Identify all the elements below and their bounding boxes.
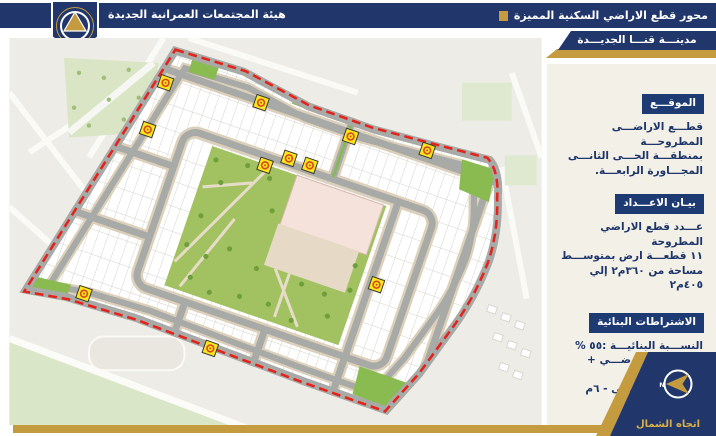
section-location-text: قطـــع الاراضـــى المطروحـــة بمنطقـــة …	[555, 120, 703, 178]
building-footprint-outside	[89, 336, 185, 370]
section-building-rules-badge: الاشتراطات البنائية	[589, 313, 704, 333]
ribbon-gold-band	[546, 49, 716, 58]
header-right-group: محور قطع الاراضي السكنية المميزة	[499, 3, 708, 28]
section-location-badge: الموقـــع	[642, 94, 704, 114]
compass-n-letter: N	[659, 381, 664, 389]
city-title-ribbon: مدينـــة قنـــا الجديـــدة	[546, 31, 716, 60]
site-map	[8, 38, 543, 425]
slide-page: هيئة المجتمعات العمرانية الجديدة محور قط…	[0, 0, 716, 436]
bottom-gold-bar	[13, 425, 663, 433]
north-direction-block: N اتجاه الشمال	[596, 352, 716, 436]
section-count-badge: بيـان الاعـــداد	[615, 194, 704, 214]
gold-accent-square	[499, 11, 508, 21]
north-label: اتجاه الشمال	[636, 419, 700, 430]
page-title: محور قطع الاراضي السكنية المميزة	[514, 9, 708, 22]
section-count-text: عـــدد قطع الاراضي المطروحة ١١ قطعـــة ا…	[555, 220, 703, 293]
authority-title: هيئة المجتمعات العمرانية الجديدة	[108, 8, 286, 21]
city-title: مدينـــة قنـــا الجديـــدة	[558, 31, 716, 50]
